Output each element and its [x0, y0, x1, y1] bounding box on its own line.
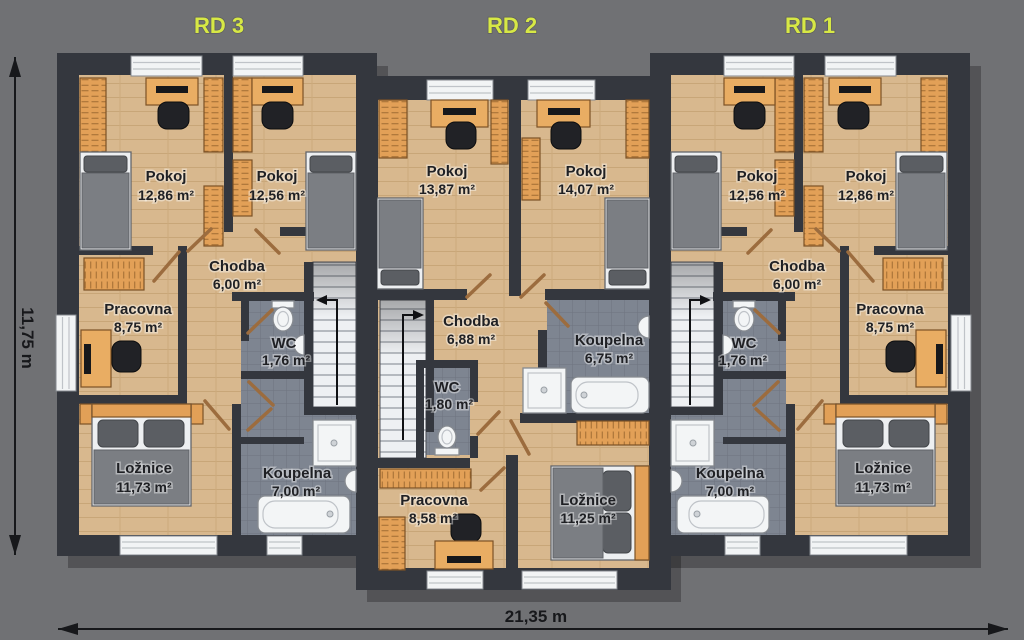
desk [435, 541, 493, 569]
wardrobe [204, 186, 223, 246]
room-label-rd3-koupelna-name: Koupelna [263, 465, 332, 482]
room-label-rd2-koupelna-area: 6,75 m² [585, 350, 634, 366]
desk-chair [158, 102, 189, 129]
room-label-rd3-chodba-name: Chodba [209, 258, 265, 275]
room-label-rd2-wc-name: WC [435, 379, 460, 396]
room-label-rd3-pokoj2-area: 12,56 m² [249, 187, 305, 203]
toilet [438, 426, 456, 448]
desk-chair [551, 122, 581, 149]
wardrobe [233, 78, 252, 152]
room-label-rd3-pracovna-area: 8,75 m² [114, 319, 163, 335]
toilet-tank [435, 448, 459, 455]
wardrobe [379, 517, 405, 570]
bed [605, 198, 650, 289]
wardrobe [379, 100, 407, 158]
monitor [156, 86, 188, 93]
room-label-rd2-loznice-area: 11,25 m² [560, 510, 616, 526]
bed [377, 198, 423, 289]
width-dimension-label: 21,35 m [505, 607, 567, 626]
headboard [635, 466, 649, 560]
room-label-rd3-loznice-area: 11,73 m² [116, 479, 172, 495]
room-label-rd1-wc-area: 1,76 m² [719, 352, 768, 368]
room-label-rd2-pracovna-name: Pracovna [400, 492, 468, 509]
room-label-rd3-wc-area: 1,76 m² [262, 352, 311, 368]
house-title-rd3: RD 3 [194, 13, 244, 38]
room-label-rd1-pracovna-name: Pracovna [856, 301, 924, 318]
wardrobe [380, 469, 471, 488]
room-label-rd1-loznice-area: 11,73 m² [855, 479, 911, 495]
room-label-rd2-pokoj1-name: Pokoj [427, 163, 468, 180]
room-label-rd2-koupelna-name: Koupelna [575, 332, 644, 349]
wardrobe [626, 100, 649, 158]
desk-chair [262, 102, 293, 129]
room-label-rd1-wc-name: WC [732, 335, 757, 352]
room-label-rd1-chodba-area: 6,00 m² [773, 276, 822, 292]
room-label-rd2-chodba-area: 6,88 m² [447, 331, 496, 347]
floor-plan-canvas: 11,75 m 21,35 m RD 3 RD 2 RD 1 Pokoj 12,… [0, 0, 1024, 640]
room-label-rd2-pokoj2-name: Pokoj [566, 163, 607, 180]
room-label-rd3-pokoj1-name: Pokoj [146, 168, 187, 185]
room-label-rd2-loznice-name: Ložnice [560, 492, 616, 509]
nightstand [191, 404, 203, 424]
room-label-rd1-koupelna-area: 7,00 m² [706, 483, 755, 499]
wardrobe [522, 138, 540, 200]
monitor [84, 344, 91, 374]
room-label-rd3-chodba-area: 6,00 m² [213, 276, 262, 292]
desk-chair [112, 341, 141, 372]
room-label-rd1-pracovna-area: 8,75 m² [866, 319, 915, 335]
headboard [92, 404, 191, 417]
room-label-rd3-pracovna-name: Pracovna [104, 301, 172, 318]
room-label-rd2-chodba-name: Chodba [443, 313, 499, 330]
monitor [548, 108, 580, 115]
monitor [443, 108, 476, 115]
room-label-rd3-pokoj2-name: Pokoj [257, 168, 298, 185]
height-dimension-label: 11,75 m [18, 307, 37, 368]
room-label-rd2-wc-area: 1,80 m² [425, 396, 474, 412]
nightstand [80, 404, 92, 424]
room-label-rd1-loznice-name: Ložnice [855, 460, 911, 477]
room-label-rd3-koupelna-area: 7,00 m² [272, 483, 321, 499]
monitor [262, 86, 293, 93]
room-label-rd3-pokoj1-area: 12,86 m² [138, 187, 194, 203]
room-label-rd1-pokoj1-area: 12,56 m² [729, 187, 785, 203]
room-label-rd3-wc-name: WC [272, 335, 297, 352]
bed [80, 152, 131, 250]
room-label-rd1-chodba-name: Chodba [769, 258, 825, 275]
house-title-rd2: RD 2 [487, 13, 537, 38]
room-label-rd2-pracovna-area: 8,58 m² [409, 510, 458, 526]
wardrobe [491, 100, 508, 164]
room-label-rd1-pokoj2-area: 12,86 m² [838, 187, 894, 203]
room-label-rd2-pokoj1-area: 13,87 m² [419, 181, 475, 197]
room-label-rd3-loznice-name: Ložnice [116, 460, 172, 477]
bed [306, 152, 356, 250]
room-label-rd2-pokoj2-area: 14,07 m² [558, 181, 614, 197]
wardrobe [84, 258, 144, 290]
monitor [447, 556, 481, 563]
house-title-rd1: RD 1 [785, 13, 835, 38]
staircase [313, 262, 356, 407]
toilet [273, 307, 293, 331]
room-label-rd1-pokoj2-name: Pokoj [846, 168, 887, 185]
wardrobe [204, 78, 223, 152]
room-label-rd1-pokoj1-name: Pokoj [737, 168, 778, 185]
desk-chair [446, 122, 476, 149]
room-label-rd1-koupelna-name: Koupelna [696, 465, 765, 482]
floor-plan-page: 11,75 m 21,35 m RD 3 RD 2 RD 1 Pokoj 12,… [0, 0, 1024, 640]
wardrobe [577, 421, 649, 445]
